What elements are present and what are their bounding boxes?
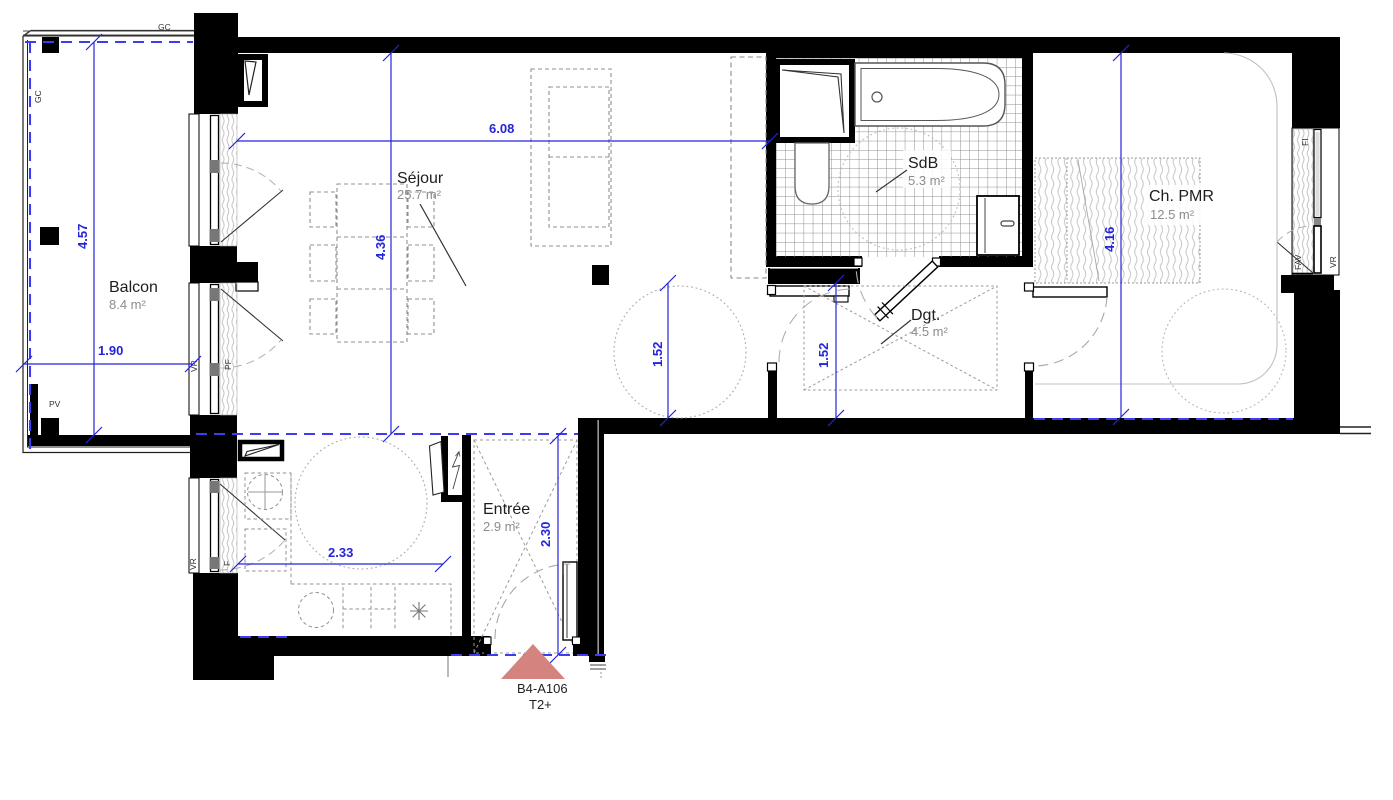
svg-text:4.36: 4.36 (373, 235, 388, 260)
svg-text:VR: VR (1328, 256, 1338, 268)
svg-text:25.7 m²: 25.7 m² (397, 187, 442, 202)
svg-text:PV: PV (49, 399, 61, 409)
svg-text:Dgt.: Dgt. (911, 307, 940, 324)
svg-text:Séjour: Séjour (397, 170, 444, 187)
svg-text:FI: FI (1300, 138, 1310, 146)
svg-text:1.90: 1.90 (98, 343, 123, 358)
svg-text:4.57: 4.57 (75, 224, 90, 249)
svg-text:12.5 m²: 12.5 m² (1150, 207, 1195, 222)
svg-text:FAV: FAV (1293, 254, 1303, 270)
svg-text:2.33: 2.33 (328, 545, 353, 560)
svg-text:1.52: 1.52 (650, 342, 665, 367)
svg-text:Balcon: Balcon (109, 279, 158, 296)
svg-text:T2+: T2+ (529, 697, 552, 712)
svg-text:1.52: 1.52 (816, 343, 831, 368)
svg-text:GC: GC (158, 22, 171, 32)
svg-text:Ch. PMR: Ch. PMR (1149, 188, 1214, 205)
svg-text:8.4 m²: 8.4 m² (109, 297, 147, 312)
svg-text:4.16: 4.16 (1102, 227, 1117, 252)
svg-text:Entrée: Entrée (483, 501, 530, 518)
svg-text:GC: GC (33, 90, 43, 103)
svg-text:SdB: SdB (908, 155, 938, 172)
svg-text:PF: PF (223, 359, 233, 370)
svg-text:VR: VR (188, 558, 198, 570)
svg-text:B4-A106: B4-A106 (517, 681, 568, 696)
svg-text:6.08: 6.08 (489, 121, 514, 136)
svg-text:5.3 m²: 5.3 m² (908, 173, 946, 188)
svg-text:2.30: 2.30 (538, 522, 553, 547)
svg-text:4.5 m²: 4.5 m² (911, 324, 949, 339)
svg-text:F: F (222, 561, 232, 566)
svg-text:2.9 m²: 2.9 m² (483, 519, 521, 534)
